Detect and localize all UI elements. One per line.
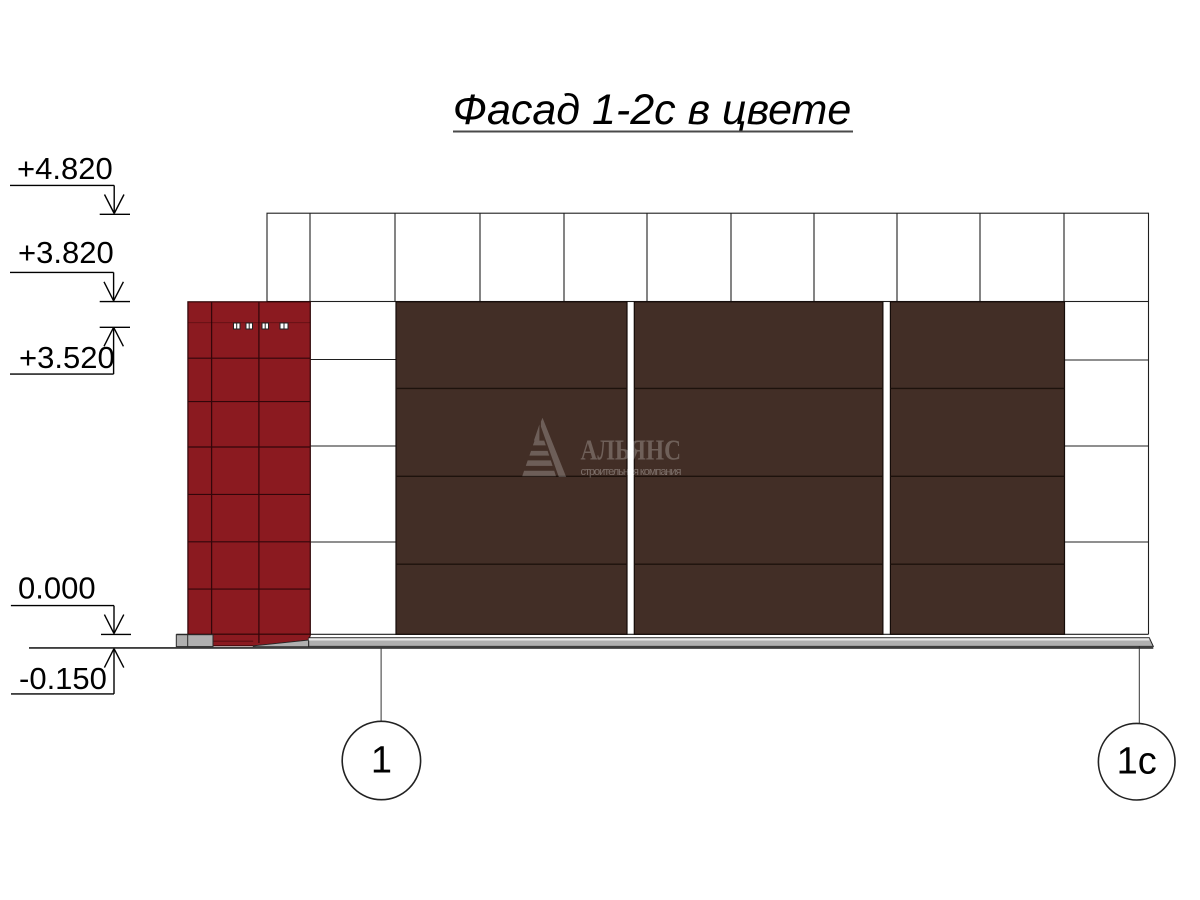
svg-text:-0.150: -0.150: [19, 661, 107, 696]
svg-text:1с: 1с: [1117, 741, 1157, 783]
svg-text:строительная компания: строительная компания: [581, 466, 682, 478]
svg-text:+3.520: +3.520: [19, 340, 115, 375]
svg-text:+4.820: +4.820: [17, 151, 113, 186]
svg-text:1: 1: [371, 740, 392, 782]
svg-text:0.000: 0.000: [18, 571, 96, 606]
svg-text:Фасад 1-2с в цвете: Фасад 1-2с в цвете: [453, 86, 851, 134]
svg-text:+3.820: +3.820: [18, 235, 114, 270]
svg-text:АЛЬЯНС: АЛЬЯНС: [581, 435, 682, 467]
